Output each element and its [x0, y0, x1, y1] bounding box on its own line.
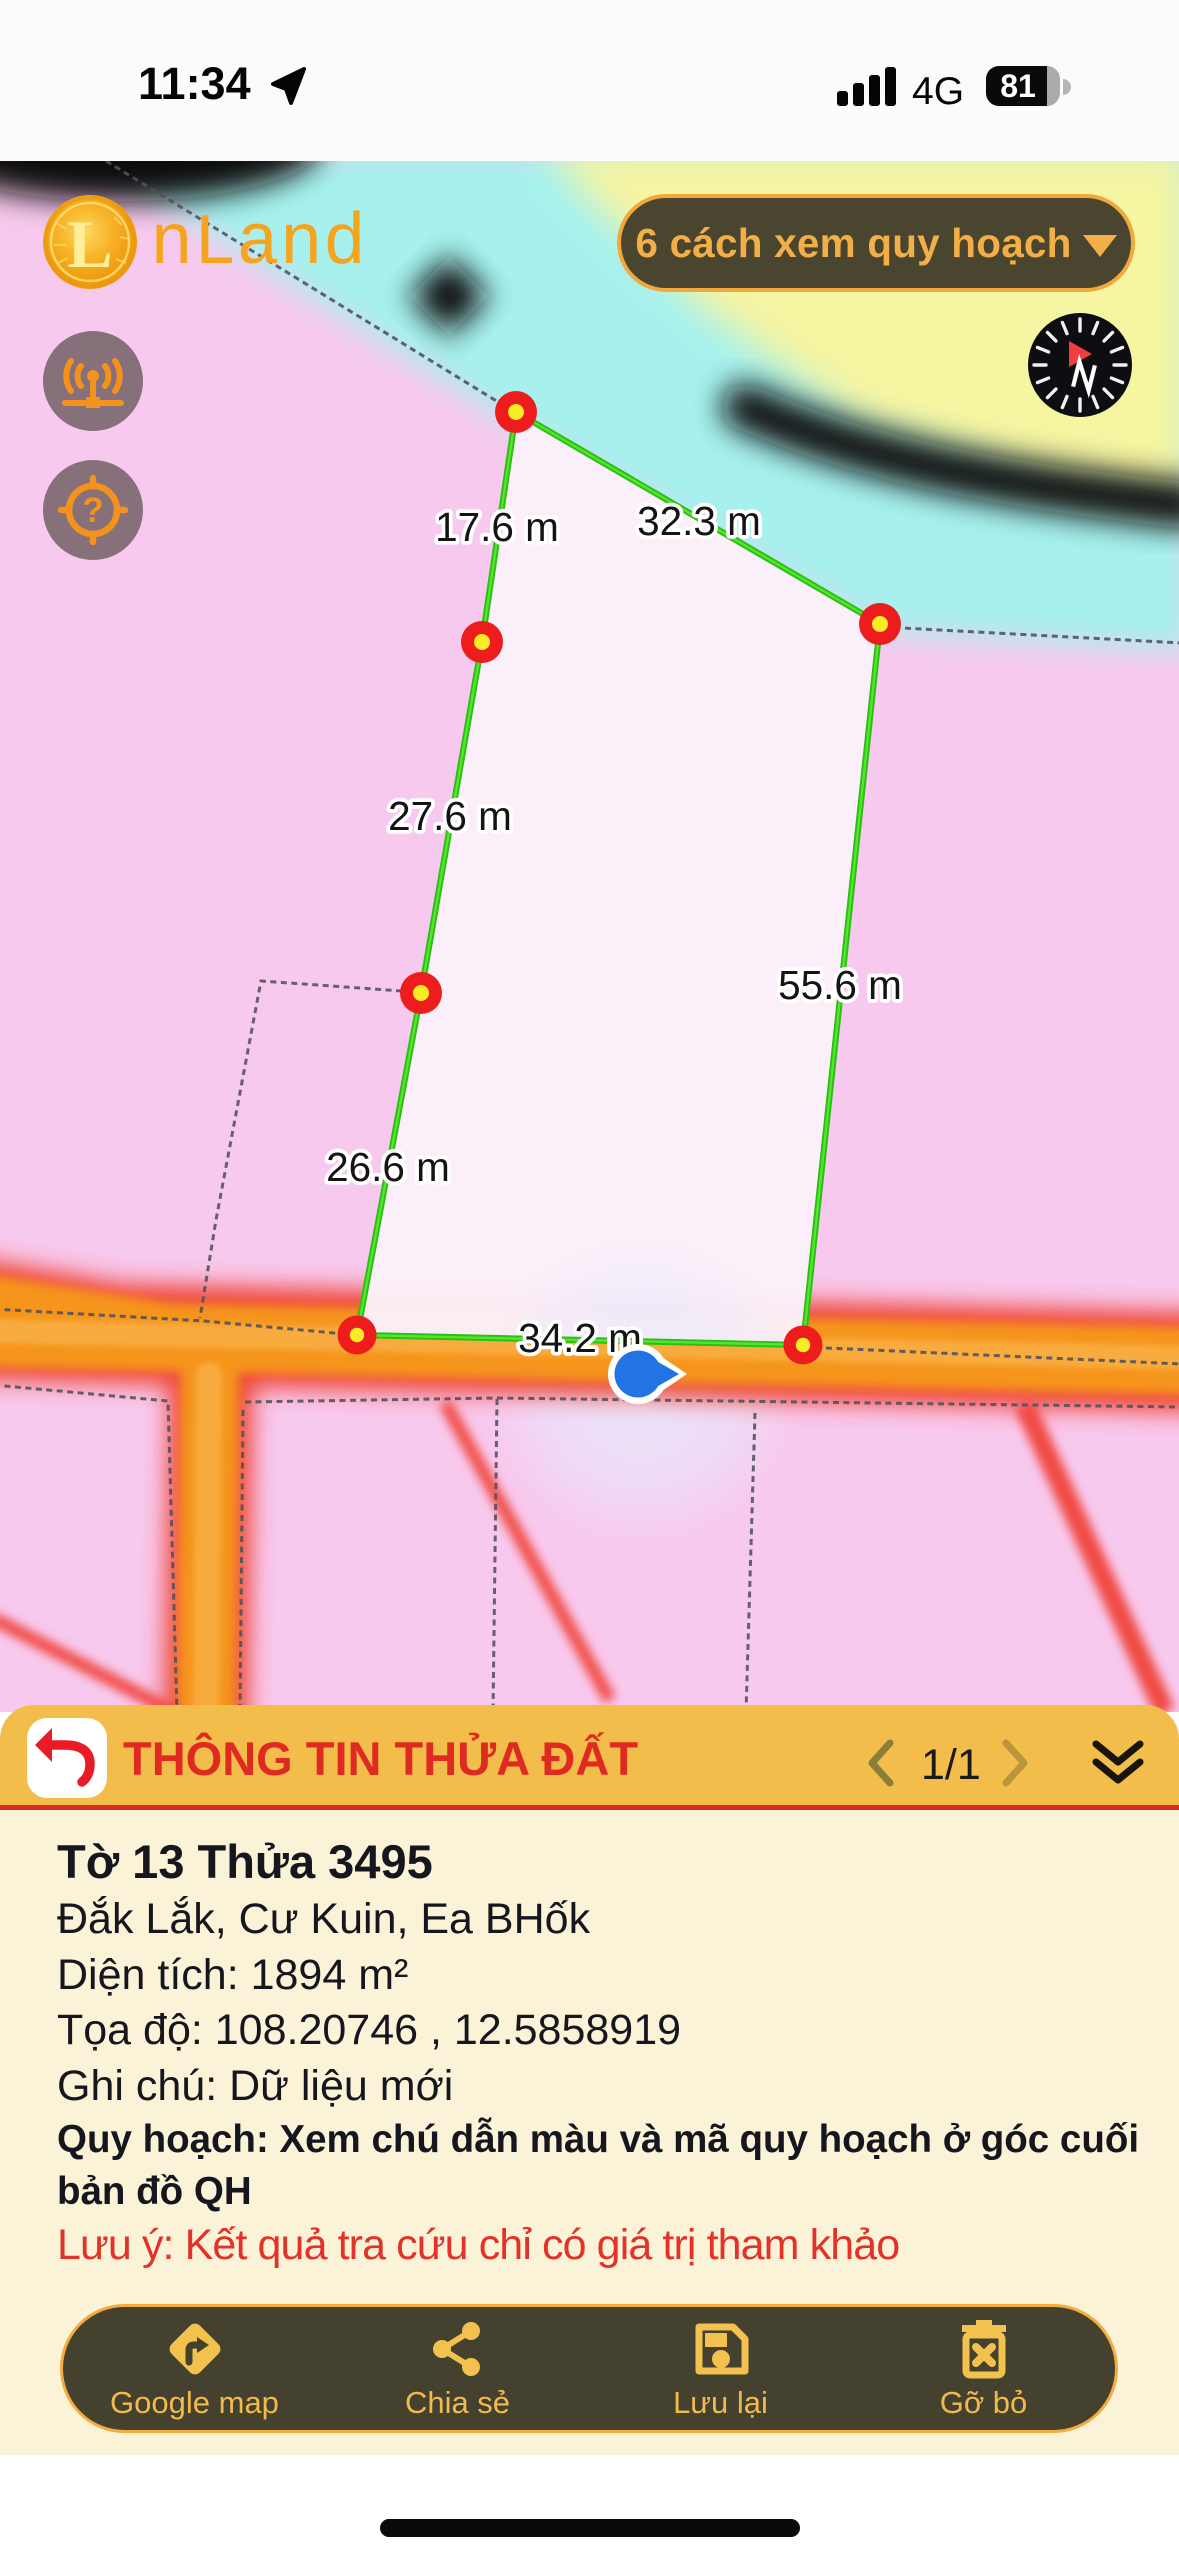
svg-text:55.6 m: 55.6 m	[778, 962, 902, 1008]
svg-text:4G: 4G	[912, 70, 964, 112]
svg-text:L: L	[67, 206, 112, 282]
svg-text:27.6 m: 27.6 m	[388, 793, 512, 839]
svg-text:81: 81	[1000, 68, 1036, 104]
svg-text:1/1: 1/1	[921, 1741, 981, 1788]
svg-text:32.3 m: 32.3 m	[637, 498, 761, 544]
svg-text:?: ?	[82, 491, 103, 530]
svg-text:26.6 m: 26.6 m	[326, 1144, 450, 1190]
svg-text:17.6 m: 17.6 m	[435, 504, 559, 550]
